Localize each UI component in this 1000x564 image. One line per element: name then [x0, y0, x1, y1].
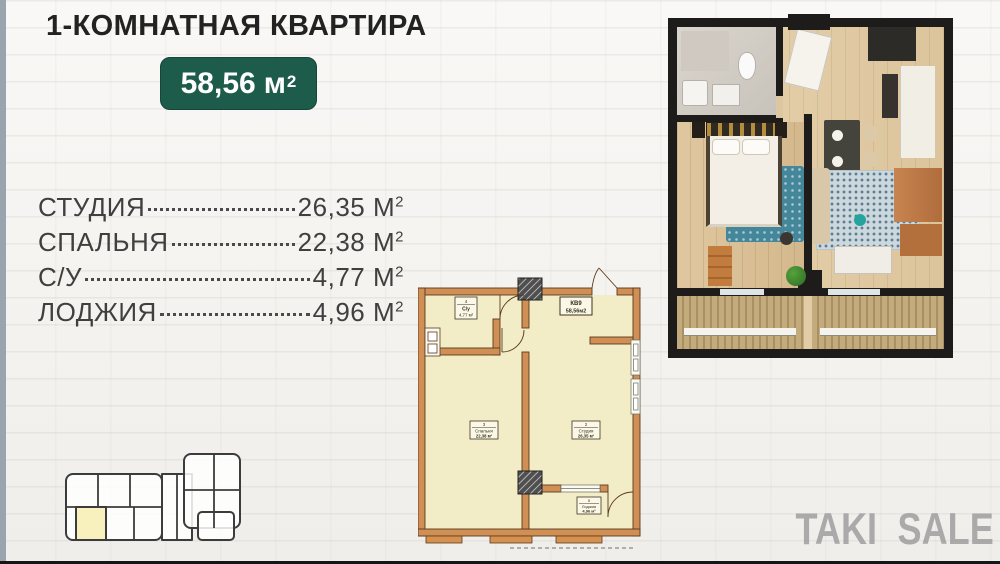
- kitchen-cabinets: [900, 66, 935, 158]
- kitchen-appliance-block: [868, 27, 916, 61]
- area-unit: М: [373, 297, 395, 327]
- area-number: 22,38: [298, 227, 366, 257]
- room-label-studio: 2 Студия 26,35 м²: [572, 421, 600, 439]
- room-area: 4,96 м²: [582, 509, 596, 514]
- brand-sale-text: SALE: [897, 504, 993, 555]
- room-label-bathroom: 4 С/у 4,77 м²: [455, 297, 477, 319]
- loggia-window: [828, 289, 880, 295]
- area-number: 4,96: [313, 297, 366, 327]
- area-unit: М: [373, 192, 395, 222]
- room-area: 22,38 м²: [476, 434, 493, 439]
- list-item: С/У 4,77 М2: [38, 262, 404, 297]
- nightstand-left: [692, 122, 705, 138]
- brand-logo: TAKI SALE: [810, 500, 1000, 558]
- dresser: [708, 246, 732, 286]
- room-label-loggia: 5 Лоджия 4,96 м²: [577, 497, 601, 514]
- area-sup: 2: [395, 298, 404, 315]
- room-area-value: 4,96 М2: [313, 297, 404, 328]
- apartment-label: КВ9 58,56м2: [560, 297, 592, 315]
- desk: [900, 224, 942, 256]
- room-area-value: 26,35 М2: [298, 192, 404, 223]
- dotted-leader: [85, 278, 310, 281]
- shower-area: [681, 31, 729, 71]
- page-title: 1-КОМНАТНАЯ КВАРТИРА: [46, 10, 466, 43]
- building-key-plan: [58, 448, 248, 553]
- coffee-table: [834, 246, 892, 274]
- loggia-floor-right: [812, 296, 944, 349]
- room-area: 26,35 м²: [578, 434, 595, 439]
- dotted-leader: [148, 208, 294, 211]
- room-area-value: 4,77 М2: [313, 262, 404, 293]
- poster-canvas: 1-КОМНАТНАЯ КВАРТИРА 58,56 м 2 СТУДИЯ 26…: [0, 0, 1000, 564]
- wall-loggia: [677, 288, 944, 296]
- pillow: [712, 139, 740, 155]
- plate: [832, 130, 843, 141]
- area-sup: 2: [395, 228, 404, 245]
- pillow: [742, 139, 770, 155]
- plan-balcony-sills: [426, 536, 602, 543]
- bathroom-door-gap: [776, 96, 783, 118]
- washing-machine: [682, 80, 708, 106]
- wardrobe: [894, 168, 942, 222]
- left-edge-strip: [0, 0, 6, 561]
- list-item: СТУДИЯ 26,35 М2: [38, 192, 404, 227]
- apartment-area: 58,56м2: [566, 309, 586, 315]
- list-item: ЛОДЖИЯ 4,96 М2: [38, 297, 404, 332]
- room-area-value: 22,38 М2: [298, 227, 404, 258]
- room-label: ЛОДЖИЯ: [38, 297, 157, 328]
- room-area: 4,77 м²: [459, 313, 474, 318]
- dotted-leader: [160, 313, 310, 316]
- wall-bathroom-bottom: [677, 115, 776, 122]
- area-sup: 2: [395, 193, 404, 210]
- plate: [832, 156, 843, 167]
- sink: [712, 84, 740, 106]
- loggia-railing-right: [820, 328, 936, 335]
- room-label: СТУДИЯ: [38, 192, 145, 223]
- plant: [786, 266, 806, 286]
- plan-vent-shaft: [425, 328, 440, 356]
- loggia-floor-left: [677, 296, 804, 349]
- room-label: СПАЛЬНЯ: [38, 227, 169, 258]
- badge-unit: м: [264, 67, 286, 101]
- floor-plan: КВ9 58,56м2 4 С/у 4,77 м² 3 Спальня 22,3…: [418, 266, 642, 552]
- room-label-bedroom: 3 Спальня 22,38 м²: [470, 421, 498, 439]
- total-area-badge: 58,56 м 2: [160, 57, 317, 110]
- toilet: [738, 52, 756, 80]
- plan-column-mid: [518, 471, 542, 494]
- key-plan-highlighted-unit: [76, 507, 106, 540]
- area-sup: 2: [395, 263, 404, 280]
- area-number: 4,77: [313, 262, 366, 292]
- room-area-list: СТУДИЯ 26,35 М2 СПАЛЬНЯ 22,38 М2 С/У 4,7…: [38, 192, 404, 332]
- list-item: СПАЛЬНЯ 22,38 М2: [38, 227, 404, 262]
- decor-ball: [854, 214, 866, 226]
- badge-value: 58,56: [181, 67, 256, 101]
- plan-column-top: [518, 278, 542, 300]
- cooktop: [882, 74, 898, 118]
- apartment-number: КВ9: [570, 301, 582, 307]
- room-label: С/У: [38, 262, 82, 293]
- render-top-notch: [788, 14, 830, 30]
- area-unit: М: [373, 227, 395, 257]
- brand-taki-text: TAKI: [796, 504, 878, 555]
- render-3d: [668, 18, 953, 358]
- wall-central: [804, 114, 812, 296]
- pouf: [780, 232, 793, 245]
- chair: [862, 126, 878, 141]
- area-unit: М: [373, 262, 395, 292]
- loggia-railing-left: [684, 328, 796, 335]
- loggia-window: [720, 289, 764, 295]
- dotted-leader: [172, 243, 295, 246]
- chair: [862, 152, 878, 167]
- badge-sup: 2: [287, 72, 296, 92]
- area-number: 26,35: [298, 192, 366, 222]
